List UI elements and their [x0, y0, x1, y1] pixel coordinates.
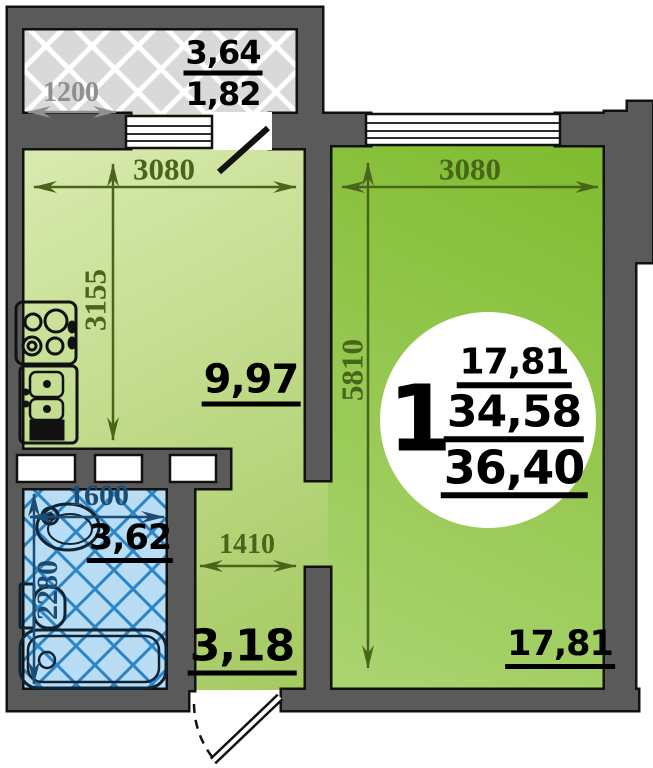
entrance-door-swing: [194, 704, 213, 758]
badge-total-area: 36,40: [441, 444, 588, 498]
living-area-label: 17,81: [505, 627, 615, 669]
ventilation-shafts: [17, 455, 216, 482]
badge-living-area: 34,58: [444, 390, 584, 442]
bathroom-depth-dim: 2280: [33, 560, 63, 620]
living-width-dim: 3080: [439, 154, 501, 185]
living-depth-dim: 5810: [337, 339, 368, 401]
hallway-width-dim: 1410: [219, 531, 275, 559]
bathroom-area-label: 3,62: [87, 521, 173, 563]
balcony-area-reduced-label: 1,82: [186, 78, 261, 110]
living-room-window: [366, 114, 560, 145]
kitchen-balcony-window: [126, 116, 212, 148]
entrance-door-leaf-inner: [213, 697, 280, 761]
kitchen-depth-dim: 3155: [80, 269, 111, 331]
badge-rooms-area: 17,81: [457, 344, 572, 388]
kitchen-area-label: 9,97: [202, 360, 301, 407]
balcony-area-label: 3,64: [184, 37, 263, 76]
bathroom-width-dim: 1600: [69, 481, 129, 511]
balcony-width-dim: 1200: [43, 79, 99, 107]
hallway-area-label: 3,18: [188, 625, 297, 676]
kitchen-width-dim: 3080: [133, 154, 195, 185]
floor-plan: 3,64 1,82 1200 3080 3155 9,97 3080 5810 …: [0, 0, 653, 768]
unit-badge-areas: 17,81 34,58 36,40: [441, 343, 588, 499]
